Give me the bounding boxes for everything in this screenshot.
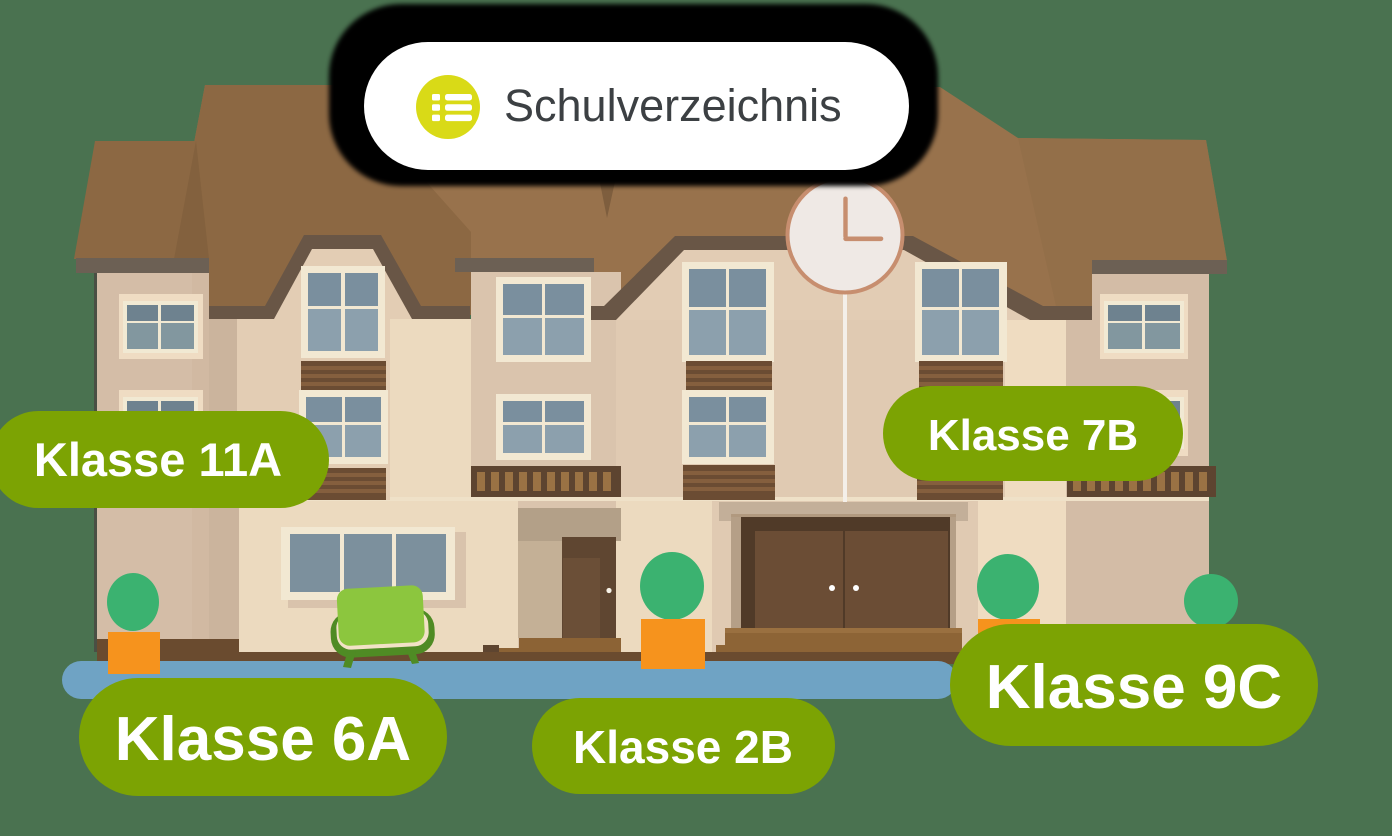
svg-text:Klasse 7B: Klasse 7B [928, 411, 1138, 460]
svg-text:Klasse 6A: Klasse 6A [115, 705, 411, 774]
svg-text:Klasse 9C: Klasse 9C [986, 653, 1282, 722]
svg-text:Schulverzeichnis: Schulverzeichnis [504, 80, 842, 131]
svg-text:Klasse 11A: Klasse 11A [34, 433, 282, 486]
svg-text:Klasse 2B: Klasse 2B [573, 721, 793, 773]
